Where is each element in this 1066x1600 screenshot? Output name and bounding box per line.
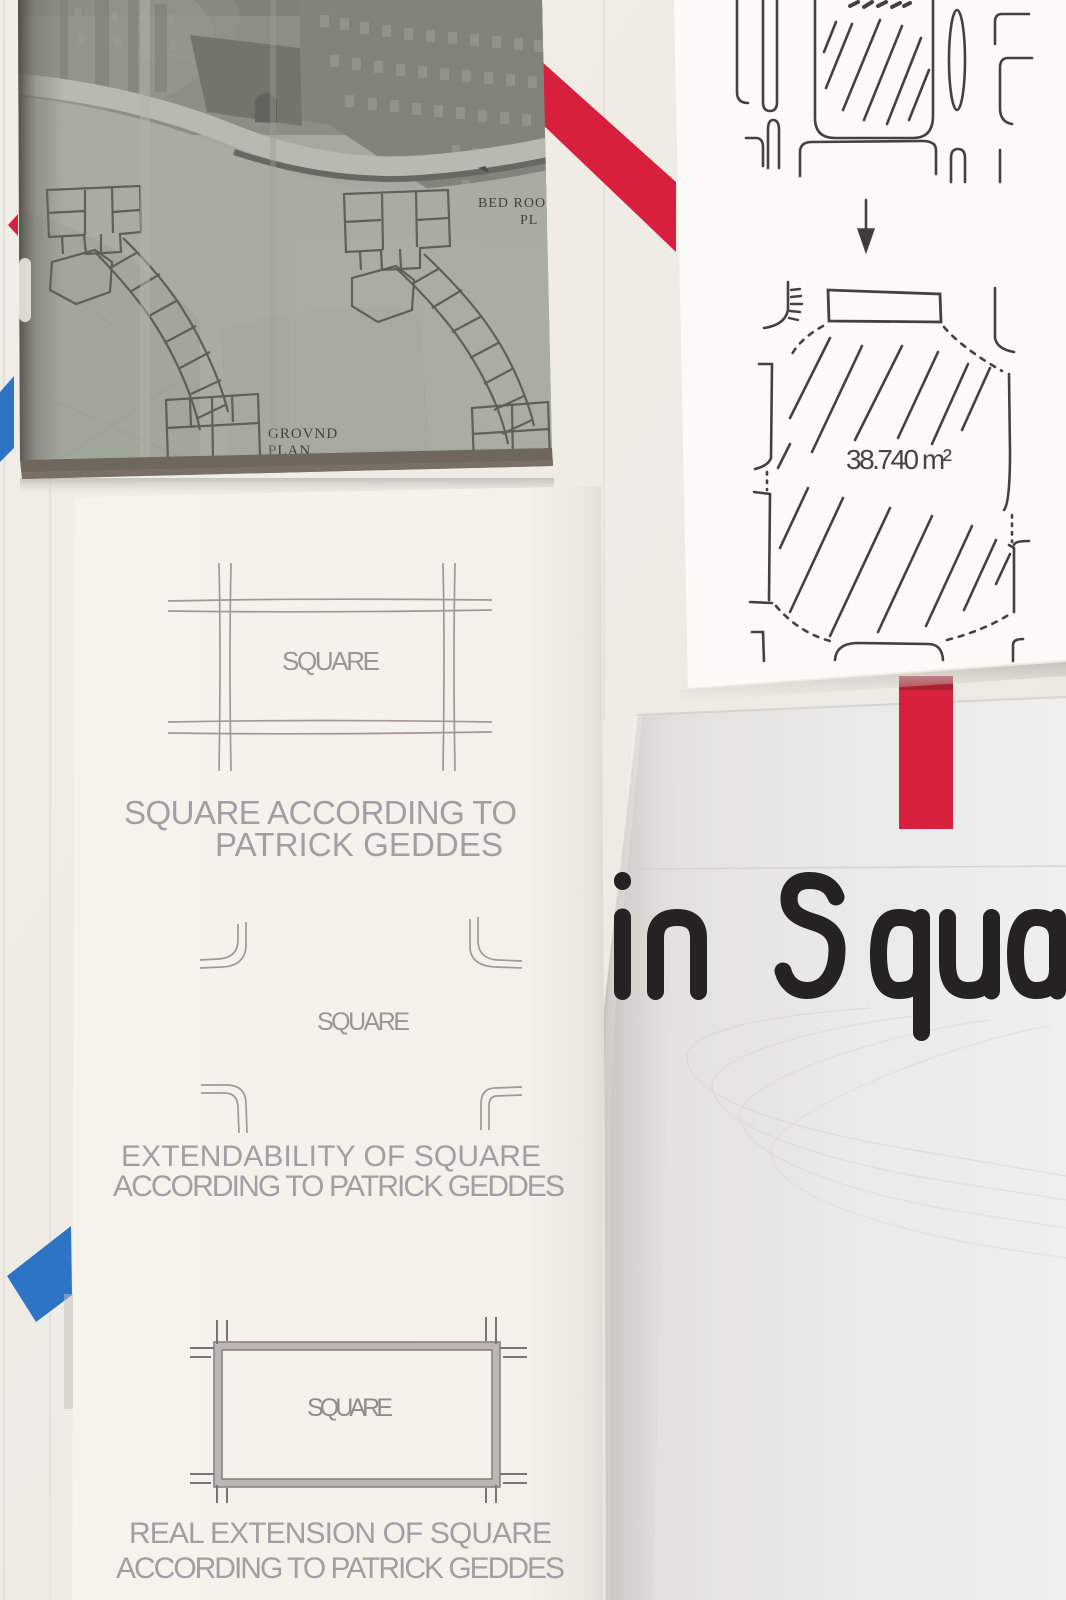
svg-text:ACCORDING TO PATRICK GEDDES: ACCORDING TO PATRICK GEDDES: [113, 1170, 565, 1203]
svg-text:EXTENDABILITY OF SQUARE: EXTENDABILITY OF SQUARE: [121, 1140, 541, 1173]
svg-text:SQUARE: SQUARE: [317, 1008, 410, 1036]
svg-text:PL: PL: [520, 213, 538, 228]
svg-text:REAL EXTENSION OF SQUARE: REAL EXTENSION OF SQUARE: [129, 1517, 552, 1550]
svg-text:SQUARE: SQUARE: [307, 1394, 393, 1422]
svg-text:38.740 m²: 38.740 m²: [846, 444, 952, 475]
svg-text:ACCORDING TO PATRICK GEDDES: ACCORDING TO PATRICK GEDDES: [116, 1552, 565, 1585]
svg-text:PATRICK GEDDES: PATRICK GEDDES: [215, 826, 503, 863]
svg-text:SQUARE: SQUARE: [282, 646, 380, 676]
svg-text:GROVND: GROVND: [268, 426, 338, 442]
svg-text:BED ROO: BED ROO: [478, 196, 546, 211]
